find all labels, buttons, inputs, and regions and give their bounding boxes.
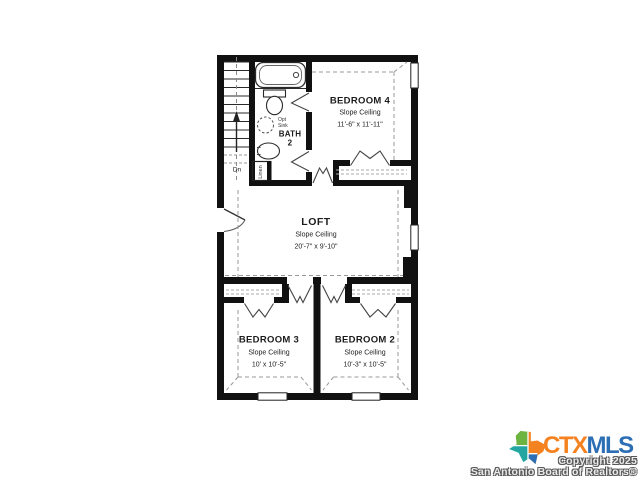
- copyright-text: Copyright 2025 San Antonio Board of Real…: [471, 456, 637, 477]
- bathtub-icon: [255, 63, 306, 89]
- stairs-down-label: Dn: [233, 167, 241, 174]
- bedroom3-ceiling-label: Slope Ceiling: [248, 350, 289, 357]
- bedroom3-dims-label: 10' x 10'-5": [252, 362, 286, 369]
- floorplan-drawing: [0, 0, 640, 480]
- opt-sink-label: Opt Sink: [278, 118, 288, 129]
- bath2-number-label: 2: [288, 139, 293, 148]
- loft-door-leaf: [224, 209, 245, 220]
- bath2-label: BATH: [279, 130, 301, 139]
- bedroom4-dims-label: 11'-6" x 11'-11": [337, 122, 382, 129]
- optional-sink-icon: [258, 117, 274, 133]
- bedroom4-door: [313, 168, 333, 183]
- bath-door: [292, 93, 310, 111]
- bedroom3-door: [288, 286, 312, 303]
- bedroom2-ceiling-label: Slope Ceiling: [344, 350, 385, 357]
- stairs: [224, 57, 249, 182]
- bedroom4-ceiling-label: Slope Ceiling: [339, 110, 380, 117]
- copyright-line2: San Antonio Board of Realtors®: [471, 467, 637, 478]
- loft-dims-label: 20'-7" x 9'-10": [294, 244, 337, 251]
- loft-ceiling-label: Slope Ceiling: [295, 232, 336, 239]
- floorplan-canvas: LOFT Slope Ceiling 20'-7" x 9'-10" BEDRO…: [0, 0, 640, 480]
- toilet-icon: [264, 90, 286, 115]
- copyright-line1: Copyright 2025: [471, 456, 637, 467]
- bedroom2-dims-label: 10'-3" x 10'-5": [343, 362, 386, 369]
- bedroom2-closet-bifold: [361, 304, 396, 318]
- bedroom3-closet-bifold: [245, 304, 274, 318]
- sink-icon: [257, 143, 280, 159]
- bedroom4-closet-bifold: [351, 151, 390, 166]
- bath-hall-door: [292, 152, 310, 172]
- bedroom4-label: BEDROOM 4: [330, 96, 390, 107]
- bedroom3-label: BEDROOM 3: [239, 335, 299, 346]
- linen-label: Linen: [258, 165, 264, 178]
- bedroom2-door: [323, 286, 346, 303]
- loft-door-arc: [224, 220, 245, 232]
- loft-label: LOFT: [301, 216, 330, 228]
- bedroom2-label: BEDROOM 2: [335, 335, 395, 346]
